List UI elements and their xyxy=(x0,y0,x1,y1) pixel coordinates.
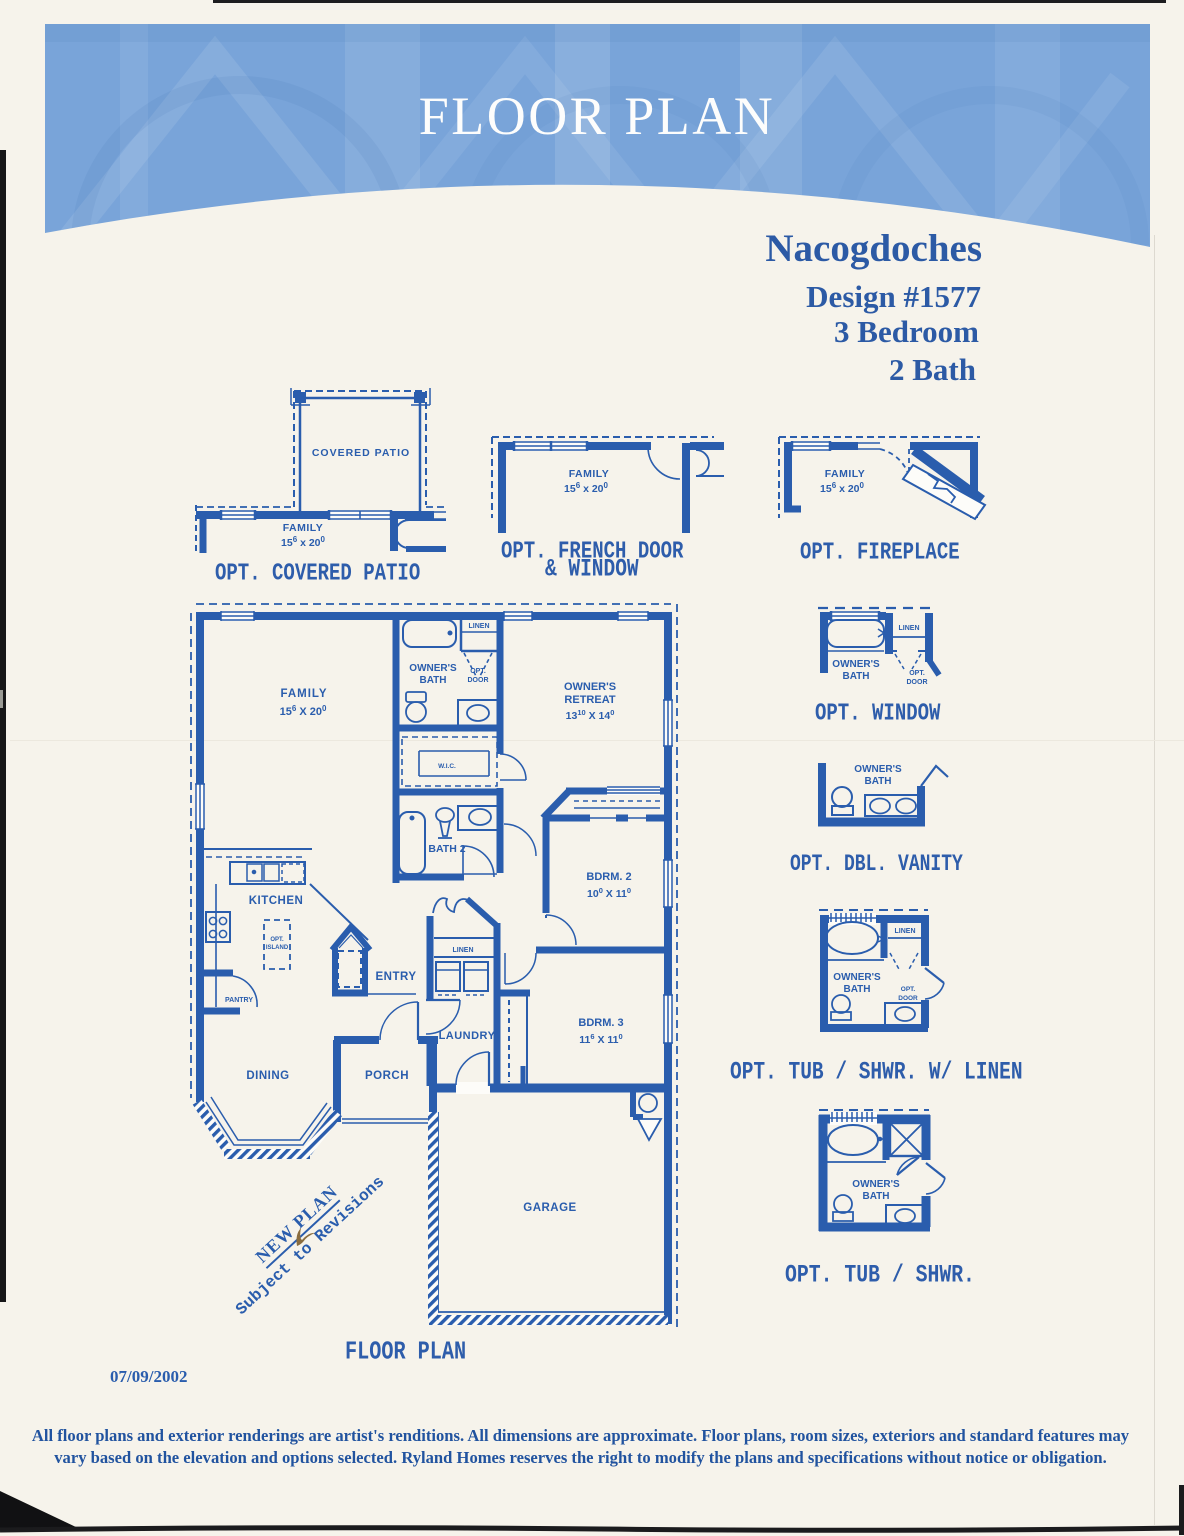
svg-text:100 X 110: 100 X 110 xyxy=(587,886,631,900)
svg-text:BATH 2: BATH 2 xyxy=(428,843,465,855)
svg-text:RETREAT: RETREAT xyxy=(564,694,615,706)
svg-text:BDRM. 2: BDRM. 2 xyxy=(586,871,631,883)
svg-text:156 X 200: 156 X 200 xyxy=(280,704,327,718)
svg-text:OWNER'S: OWNER'S xyxy=(852,1179,900,1190)
svg-text:156 x 200: 156 x 200 xyxy=(820,481,865,495)
svg-text:W.I.C.: W.I.C. xyxy=(438,763,456,770)
svg-text:LAUNDRY: LAUNDRY xyxy=(439,1030,496,1042)
svg-text:1310 X 140: 1310 X 140 xyxy=(566,708,615,722)
svg-text:DOOR: DOOR xyxy=(468,677,489,684)
svg-text:BATH: BATH xyxy=(843,984,870,995)
svg-text:OWNER'S: OWNER'S xyxy=(854,764,902,775)
svg-text:KITCHEN: KITCHEN xyxy=(249,895,304,907)
svg-text:PANTRY: PANTRY xyxy=(225,997,253,1004)
svg-text:DOOR: DOOR xyxy=(898,995,918,1002)
svg-text:LINEN: LINEN xyxy=(453,947,474,954)
svg-text:BDRM. 3: BDRM. 3 xyxy=(578,1017,623,1029)
svg-text:FAMILY: FAMILY xyxy=(569,468,610,480)
svg-text:ENTRY: ENTRY xyxy=(375,971,416,983)
svg-text:OWNER'S: OWNER'S xyxy=(833,972,881,983)
svg-text:OWNER'S: OWNER'S xyxy=(564,681,616,693)
svg-text:COVERED PATIO: COVERED PATIO xyxy=(312,447,410,459)
svg-text:FLOOR PLAN: FLOOR PLAN xyxy=(419,86,776,146)
svg-text:PORCH: PORCH xyxy=(365,1070,409,1082)
svg-text:DOOR: DOOR xyxy=(907,679,928,686)
svg-text:FAMILY: FAMILY xyxy=(825,468,866,480)
svg-text:BATH: BATH xyxy=(864,776,891,787)
svg-text:BATH: BATH xyxy=(419,675,446,686)
svg-text:OPT.: OPT. xyxy=(270,937,284,943)
svg-text:FAMILY: FAMILY xyxy=(280,688,327,700)
svg-text:LINEN: LINEN xyxy=(469,623,490,630)
svg-text:OPT.: OPT. xyxy=(909,670,925,677)
svg-text:GARAGE: GARAGE xyxy=(523,1202,576,1214)
svg-text:LINEN: LINEN xyxy=(899,625,920,632)
svg-text:DINING: DINING xyxy=(246,1070,289,1082)
svg-text:ISLAND: ISLAND xyxy=(266,945,289,951)
svg-text:OPT.: OPT. xyxy=(470,668,486,675)
svg-text:OWNER'S: OWNER'S xyxy=(832,659,880,670)
svg-text:116 X 110: 116 X 110 xyxy=(579,1032,622,1046)
svg-text:156 x 200: 156 x 200 xyxy=(281,535,326,549)
svg-text:FAMILY: FAMILY xyxy=(283,522,324,534)
svg-text:156 x 200: 156 x 200 xyxy=(564,481,609,495)
svg-text:OPT.: OPT. xyxy=(901,986,916,993)
svg-text:BATH: BATH xyxy=(842,671,869,682)
svg-text:BATH: BATH xyxy=(862,1191,889,1202)
svg-text:LINEN: LINEN xyxy=(895,928,916,935)
svg-text:OWNER'S: OWNER'S xyxy=(409,663,457,674)
